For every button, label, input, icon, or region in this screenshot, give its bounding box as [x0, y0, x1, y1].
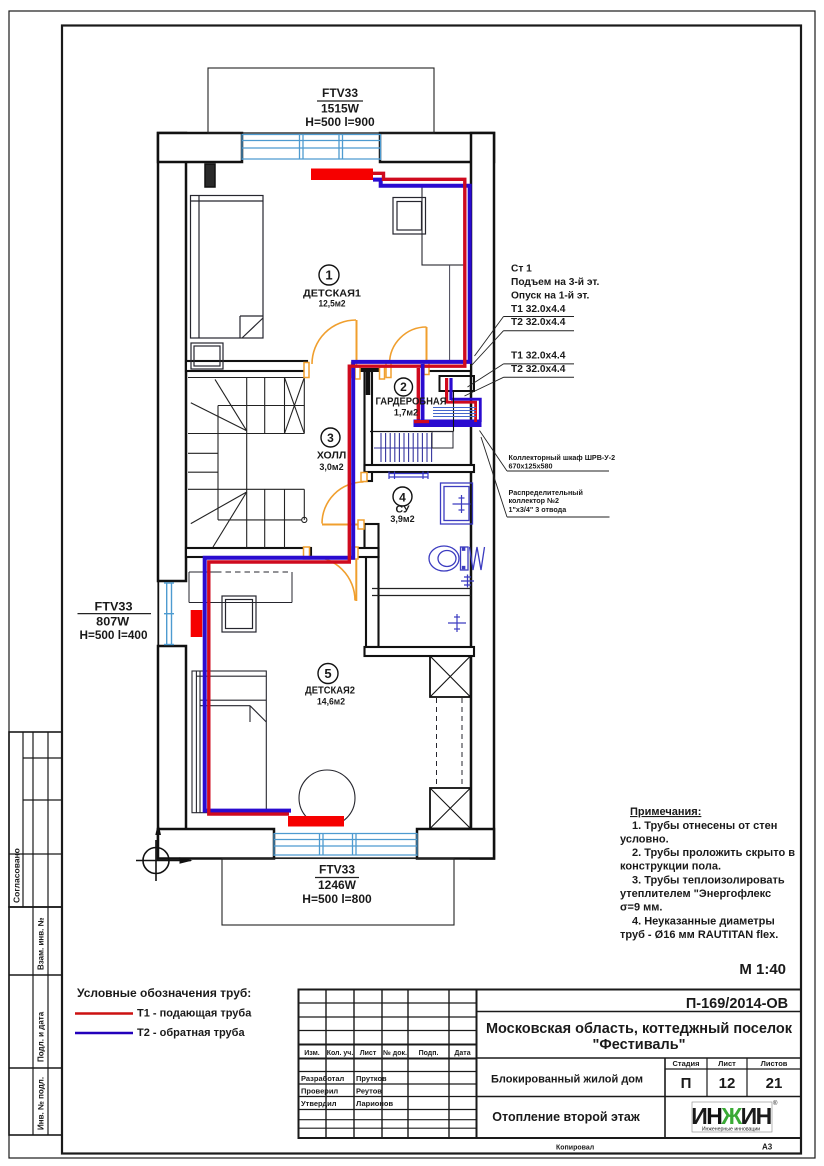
- svg-text:σ=9 мм.: σ=9 мм.: [620, 902, 662, 914]
- svg-text:ХОЛЛ: ХОЛЛ: [317, 450, 346, 462]
- svg-text:Инженерные инновации: Инженерные инновации: [702, 1127, 760, 1133]
- svg-text:Проверил: Проверил: [301, 1087, 338, 1096]
- svg-text:Реутов: Реутов: [356, 1087, 382, 1096]
- svg-text:конструкции пола.: конструкции пола.: [620, 861, 721, 873]
- svg-text:коллектор №2: коллектор №2: [509, 496, 560, 505]
- svg-text:3. Трубы теплоизолировать: 3. Трубы теплоизолировать: [632, 875, 785, 887]
- svg-text:Т1 - подающая труба: Т1 - подающая труба: [137, 1008, 252, 1020]
- svg-text:2. Трубы проложить скрыто в: 2. Трубы проложить скрыто в: [632, 847, 795, 859]
- svg-text:12: 12: [719, 1075, 736, 1092]
- svg-text:5: 5: [324, 666, 331, 681]
- svg-text:Прутков: Прутков: [356, 1074, 387, 1083]
- svg-text:3: 3: [327, 431, 334, 445]
- svg-text:670х125х580: 670х125х580: [509, 462, 553, 471]
- svg-text:А3: А3: [762, 1143, 773, 1152]
- svg-text:утеплителем "Энергофлекс: утеплителем "Энергофлекс: [620, 888, 771, 900]
- svg-text:Опуск на 1-й эт.: Опуск на 1-й эт.: [511, 290, 589, 301]
- svg-text:®: ®: [773, 1100, 778, 1107]
- svg-text:1246W: 1246W: [318, 878, 357, 892]
- svg-text:FTV33: FTV33: [319, 863, 355, 877]
- svg-text:условно.: условно.: [620, 834, 669, 846]
- svg-text:Ларионов: Ларионов: [356, 1099, 394, 1108]
- svg-text:Т2 32.0х4.4: Т2 32.0х4.4: [511, 317, 566, 328]
- svg-text:1. Трубы отнесены от стен: 1. Трубы отнесены от стен: [632, 820, 777, 832]
- svg-text:21: 21: [766, 1075, 783, 1092]
- svg-text:"Фестиваль": "Фестиваль": [593, 1037, 686, 1053]
- svg-text:Подл. и дата: Подл. и дата: [37, 1011, 46, 1062]
- svg-text:Стадия: Стадия: [672, 1059, 699, 1068]
- svg-text:H=500 l=800: H=500 l=800: [302, 892, 372, 906]
- svg-text:807W: 807W: [96, 617, 129, 629]
- svg-text:1: 1: [325, 268, 332, 283]
- svg-text:1,7м2: 1,7м2: [394, 408, 418, 418]
- svg-text:ГАРДЕРОБНАЯ: ГАРДЕРОБНАЯ: [376, 396, 447, 408]
- svg-text:Лист: Лист: [718, 1059, 736, 1068]
- svg-text:Изм.: Изм.: [304, 1050, 320, 1057]
- svg-text:М 1:40: М 1:40: [739, 961, 786, 978]
- svg-text:14,6м2: 14,6м2: [317, 697, 345, 708]
- svg-text:Условные обозначения труб:: Условные обозначения труб:: [77, 986, 251, 1000]
- svg-text:Взам. инв. №: Взам. инв. №: [37, 917, 46, 970]
- svg-text:1"х3/4" 3 отвода: 1"х3/4" 3 отвода: [509, 505, 568, 514]
- svg-text:FTV33: FTV33: [95, 602, 133, 614]
- svg-text:Согласовано: Согласовано: [12, 848, 22, 903]
- svg-text:Т2 32.0х4.4: Т2 32.0х4.4: [511, 364, 566, 375]
- svg-text:2: 2: [400, 380, 407, 394]
- svg-text:Т2 - обратная труба: Т2 - обратная труба: [137, 1027, 245, 1039]
- svg-text:3,0м2: 3,0м2: [319, 462, 343, 472]
- svg-text:Подп.: Подп.: [419, 1050, 439, 1057]
- svg-text:ИНЖИН: ИНЖИН: [691, 1103, 771, 1129]
- svg-text:№ док.: № док.: [383, 1049, 407, 1057]
- svg-text:4: 4: [399, 491, 406, 505]
- svg-text:Копировал: Копировал: [556, 1145, 594, 1152]
- svg-text:Т1 32.0х4.4: Т1 32.0х4.4: [511, 350, 566, 361]
- svg-text:Лист: Лист: [360, 1050, 377, 1057]
- svg-text:FTV33: FTV33: [322, 86, 358, 100]
- svg-text:3,9м2: 3,9м2: [390, 514, 414, 524]
- svg-text:Разработал: Разработал: [301, 1074, 345, 1083]
- svg-text:П-169/2014-ОВ: П-169/2014-ОВ: [686, 996, 788, 1012]
- svg-text:Кол. уч.: Кол. уч.: [327, 1050, 354, 1057]
- svg-text:1515W: 1515W: [321, 102, 360, 116]
- svg-text:ДЕТСКАЯ2: ДЕТСКАЯ2: [305, 686, 355, 697]
- svg-text:Блокированный жилой дом: Блокированный жилой дом: [491, 1074, 643, 1086]
- svg-text:Московская область, коттеджный: Московская область, коттеджный поселок: [486, 1021, 793, 1037]
- svg-text:П: П: [681, 1075, 692, 1092]
- svg-text:Т1 32.0х4.4: Т1 32.0х4.4: [511, 304, 566, 315]
- svg-text:Примечания:: Примечания:: [630, 806, 701, 818]
- svg-text:12,5м2: 12,5м2: [319, 299, 346, 310]
- svg-text:Инв. № подл.: Инв. № подл.: [37, 1077, 46, 1130]
- svg-text:Дата: Дата: [454, 1050, 470, 1057]
- svg-text:труб - Ø16 мм RAUTITAN flex.: труб - Ø16 мм RAUTITAN flex.: [620, 929, 778, 941]
- svg-text:Листов: Листов: [761, 1059, 788, 1068]
- svg-text:H=500 l=900: H=500 l=900: [305, 115, 375, 129]
- svg-text:Утвердил: Утвердил: [301, 1099, 337, 1108]
- svg-text:H=500 l=400: H=500 l=400: [80, 630, 148, 642]
- svg-text:Подъем на 3-й эт.: Подъем на 3-й эт.: [511, 277, 599, 288]
- svg-text:4. Неуказанные диаметры: 4. Неуказанные диаметры: [632, 916, 775, 928]
- svg-text:Ст 1: Ст 1: [511, 264, 532, 275]
- svg-text:Отопление второй этаж: Отопление второй этаж: [492, 1110, 640, 1124]
